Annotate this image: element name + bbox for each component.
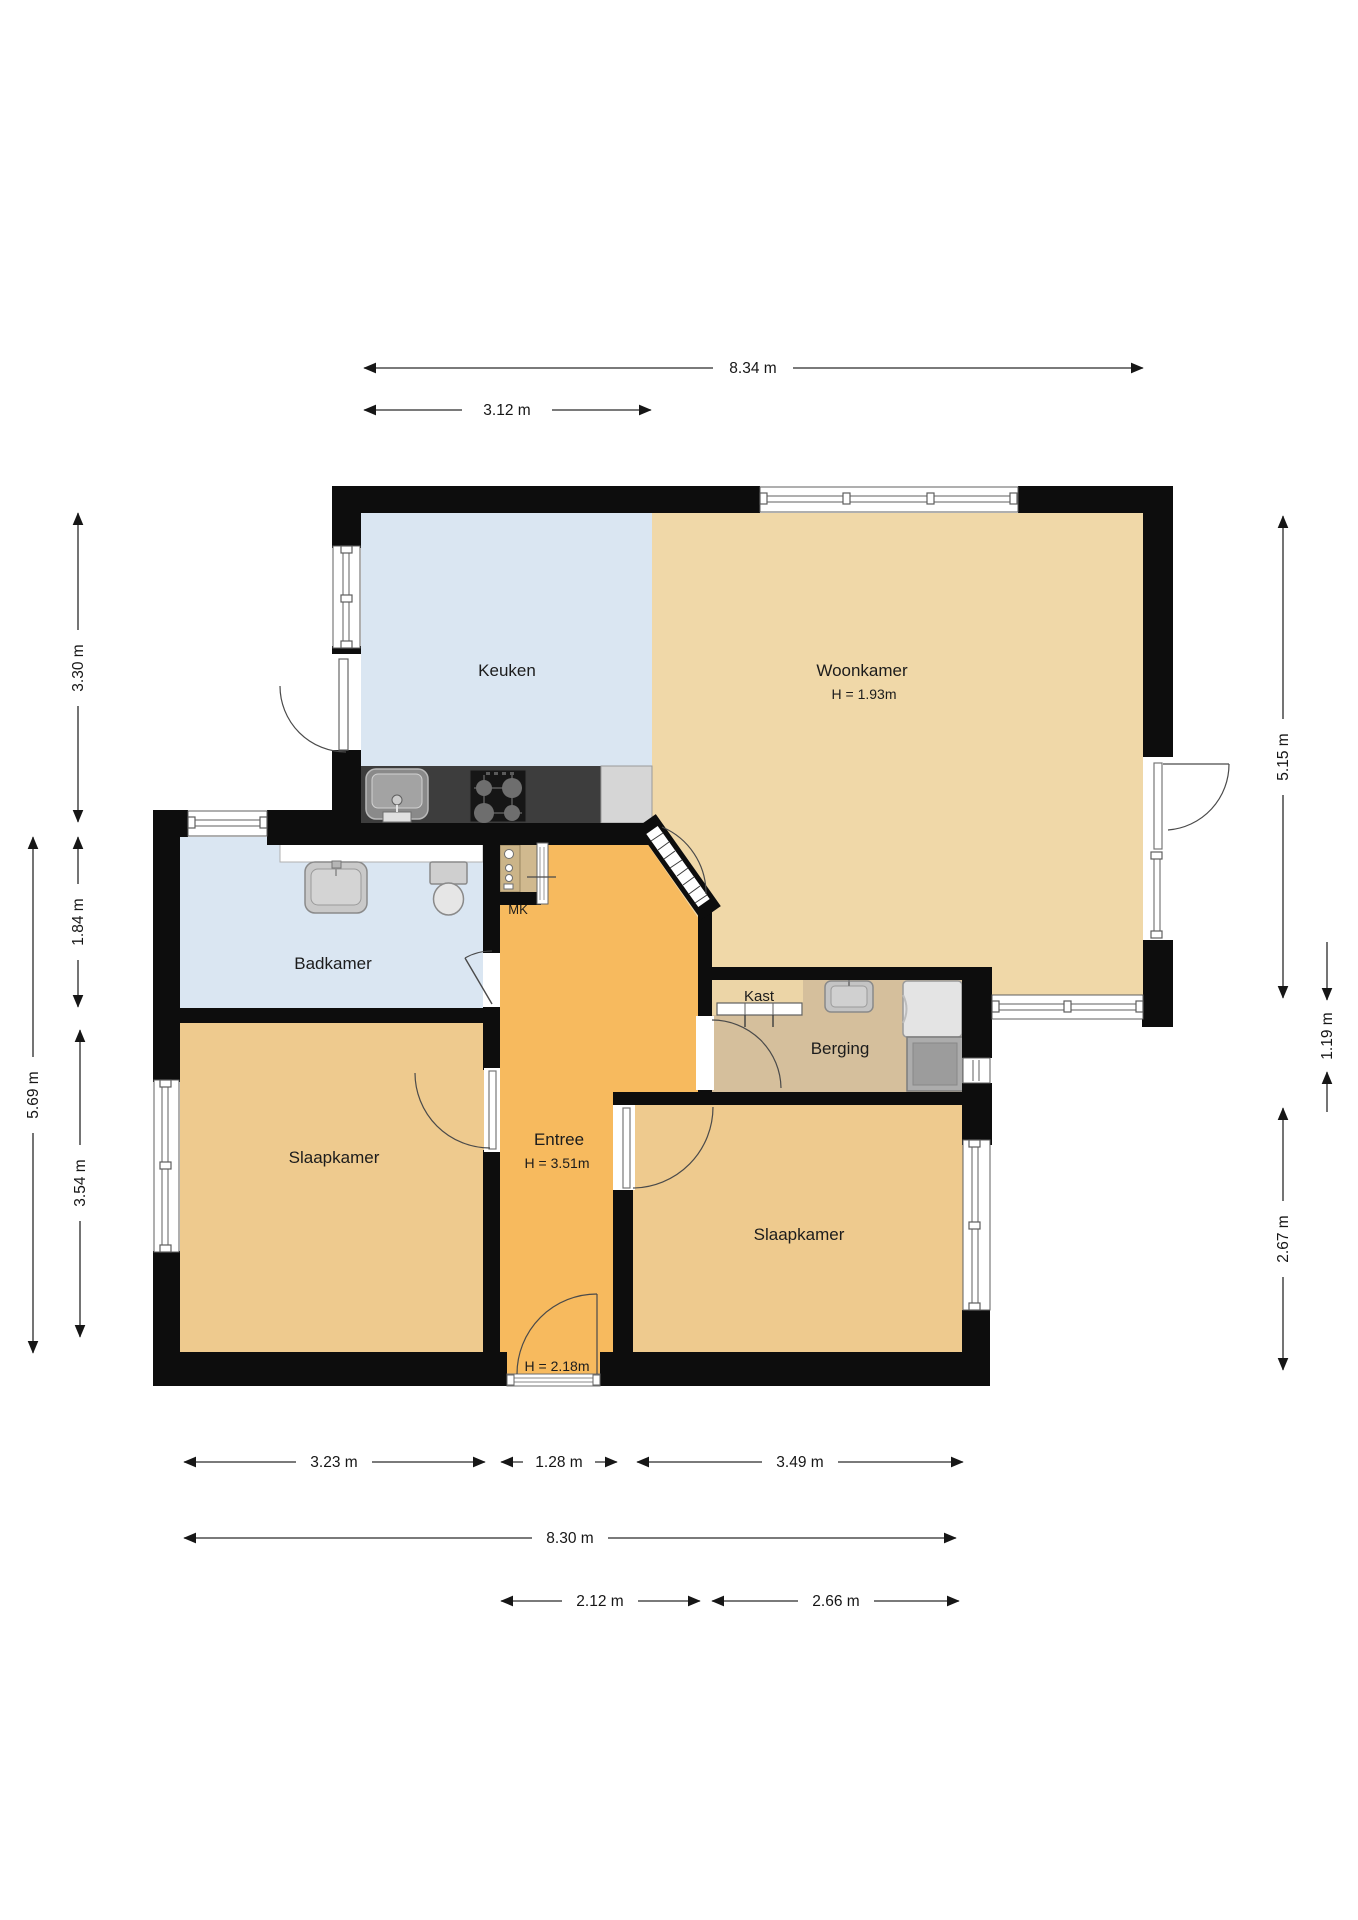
window-slaapkamer-links <box>154 1080 179 1252</box>
dim-label-834: 8.34 m <box>729 360 776 377</box>
dim-label-184: 1.84 m <box>70 898 87 945</box>
floor-woonkamer <box>646 513 1143 1018</box>
window-keuken-left <box>333 546 360 648</box>
room-floors <box>180 513 1143 1374</box>
window-badkamer-top <box>188 811 267 836</box>
dim-label-212: 2.12 m <box>576 1593 623 1610</box>
room-label-entree: Entree <box>534 1130 584 1149</box>
room-label-keuken: Keuken <box>478 661 536 680</box>
dim-label-830: 8.30 m <box>546 1530 593 1547</box>
front-door-height: H = 2.18m <box>525 1358 590 1374</box>
window-slaapkamer-rechts <box>963 1140 990 1310</box>
room-label-slaapkamer-rechts: Slaapkamer <box>754 1225 845 1244</box>
room-label-badkamer: Badkamer <box>294 954 372 973</box>
dim-label-323: 3.23 m <box>310 1454 357 1471</box>
room-label-mk: MK <box>508 902 528 917</box>
dryer-icon <box>907 1037 963 1091</box>
room-height-woonkamer: H = 1.93m <box>832 686 897 702</box>
meter-cabinet <box>500 845 520 892</box>
floorplan-canvas: 8.34 m 3.12 m 3.30 m 1.84 m 3.54 m 5.69 … <box>0 0 1358 1920</box>
kitchen-sink-icon <box>366 769 428 822</box>
bathroom-sink-icon <box>305 861 367 913</box>
washing-machine-icon <box>903 981 962 1037</box>
window-woonkamer-bottom <box>992 995 1143 1019</box>
dim-label-267: 2.67 m <box>1275 1215 1292 1262</box>
kitchen-counter <box>361 766 652 823</box>
room-label-slaapkamer-links: Slaapkamer <box>289 1148 380 1167</box>
dim-label-515: 5.15 m <box>1275 733 1292 780</box>
front-door-threshold <box>507 1374 600 1386</box>
dim-label-354: 3.54 m <box>72 1159 89 1206</box>
room-height-entree: H = 3.51m <box>525 1155 590 1171</box>
window-berging <box>963 1058 990 1083</box>
dim-label-349: 3.49 m <box>776 1454 823 1471</box>
door-woonkamer-exterior <box>1143 757 1229 940</box>
berging-sink-icon <box>825 978 873 1012</box>
dim-label-119: 1.19 m <box>1319 1012 1336 1059</box>
room-label-kast: Kast <box>744 988 775 1005</box>
dim-label-312: 3.12 m <box>483 402 530 419</box>
dim-label-128: 1.28 m <box>535 1454 582 1471</box>
floorplan-drawing: 8.34 m 3.12 m 3.30 m 1.84 m 3.54 m 5.69 … <box>0 0 1358 1920</box>
room-label-woonkamer: Woonkamer <box>816 661 908 680</box>
room-label-berging: Berging <box>811 1039 870 1058</box>
window-woonkamer-top <box>760 487 1018 512</box>
door-keuken-exterior <box>280 654 361 752</box>
cooktop-icon <box>470 770 526 823</box>
dim-label-266: 2.66 m <box>812 1593 859 1610</box>
floor-slaapkamer-links <box>180 1023 485 1352</box>
dim-label-569: 5.69 m <box>25 1071 42 1118</box>
dim-label-330: 3.30 m <box>70 644 87 691</box>
